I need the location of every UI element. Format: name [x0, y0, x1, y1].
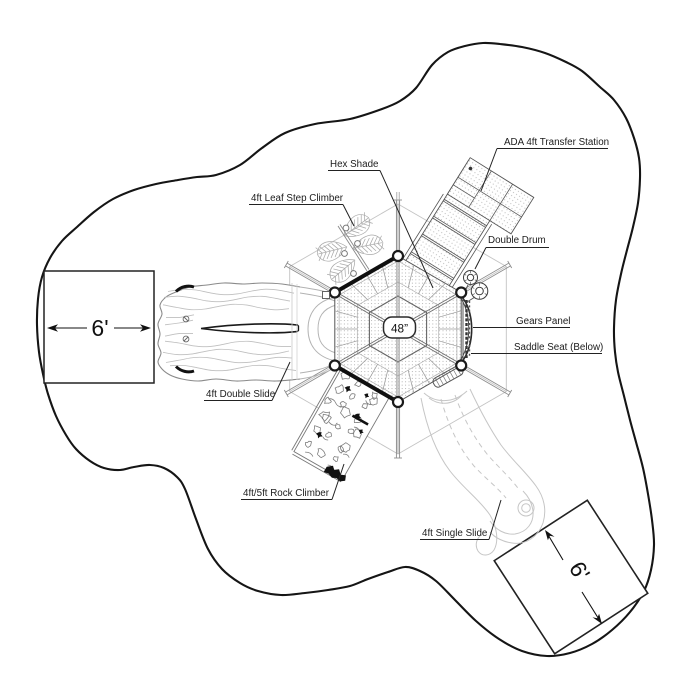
- svg-text:48”: 48”: [391, 322, 408, 336]
- svg-text:Hex Shade: Hex Shade: [330, 159, 379, 170]
- svg-text:ADA 4ft Transfer Station: ADA 4ft Transfer Station: [504, 137, 609, 148]
- svg-text:4ft/5ft Rock Climber: 4ft/5ft Rock Climber: [243, 488, 330, 499]
- svg-text:4ft Single Slide: 4ft Single Slide: [422, 528, 488, 539]
- svg-text:Saddle Seat (Below): Saddle Seat (Below): [514, 342, 603, 353]
- svg-text:Gears Panel: Gears Panel: [516, 316, 570, 327]
- svg-text:Double Drum: Double Drum: [488, 235, 546, 246]
- svg-text:4ft Leaf Step Climber: 4ft Leaf Step Climber: [251, 193, 344, 204]
- svg-text:6': 6': [91, 315, 108, 341]
- svg-text:4ft Double Slide: 4ft Double Slide: [206, 389, 276, 400]
